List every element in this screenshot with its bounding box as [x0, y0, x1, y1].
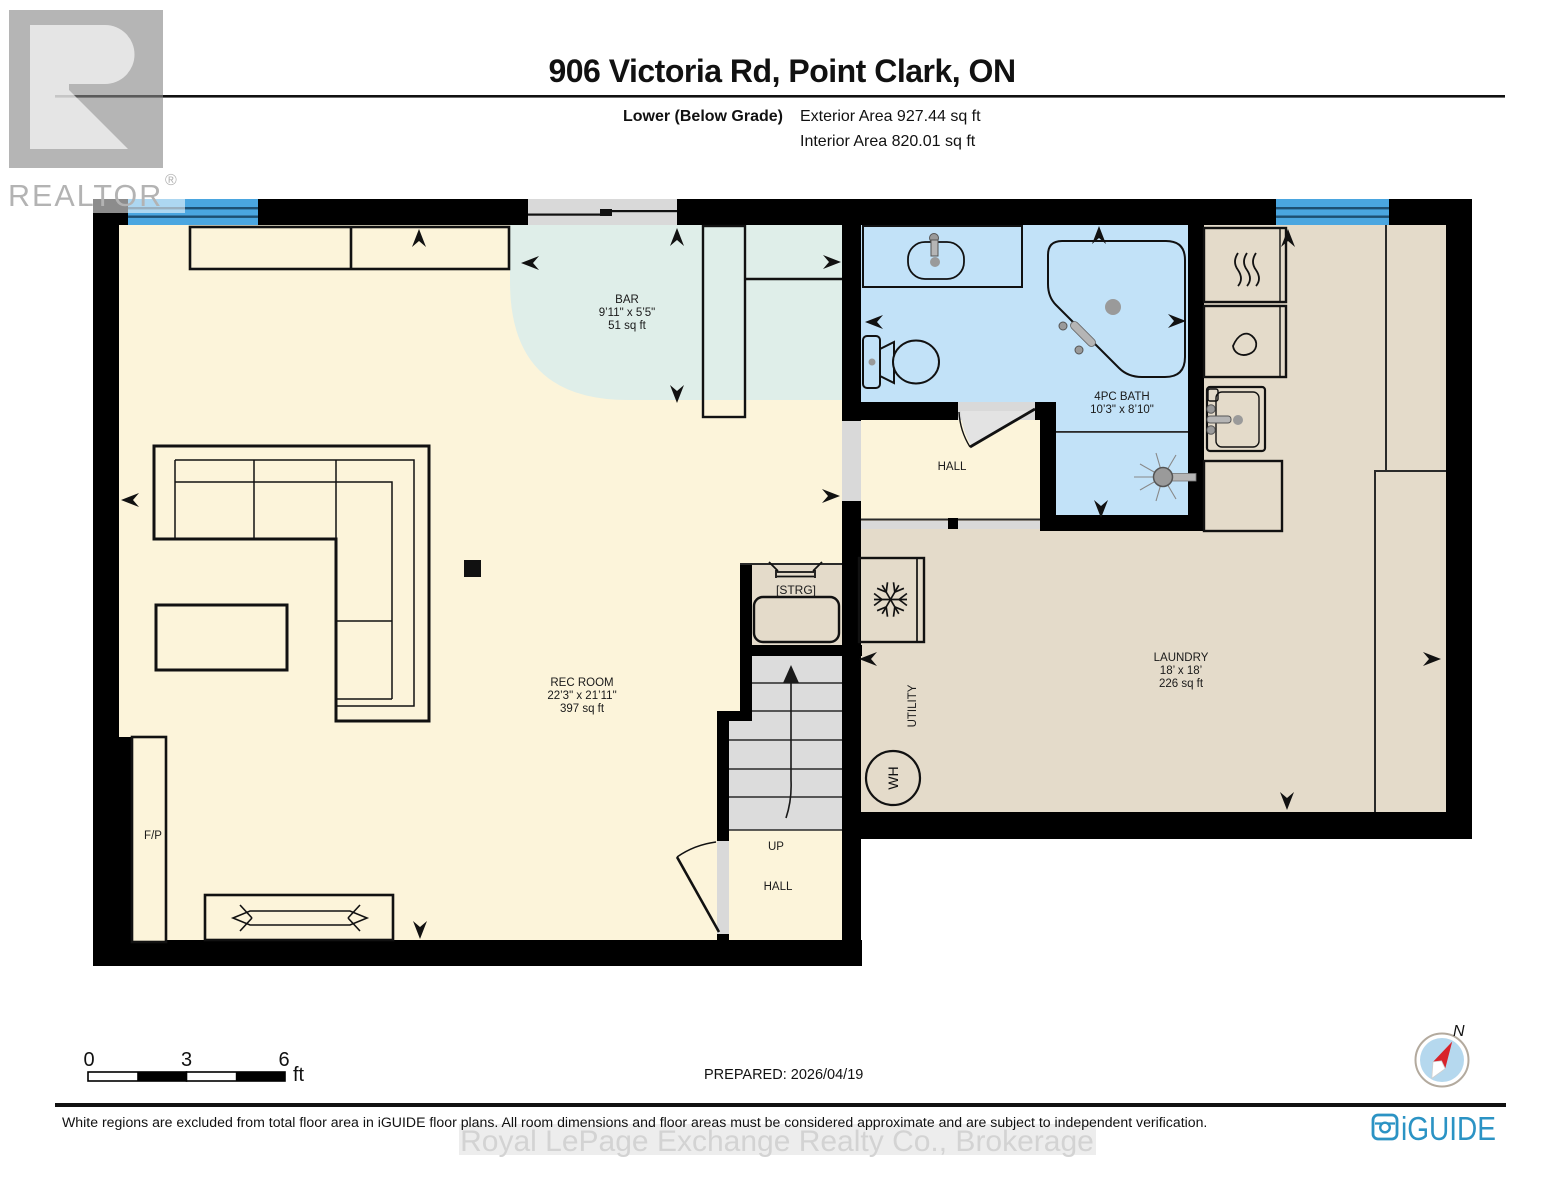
svg-text:9’11" x 5’5": 9’11" x 5’5"	[599, 307, 656, 319]
svg-text:REC ROOM: REC ROOM	[550, 677, 613, 689]
svg-text:WH: WH	[885, 766, 901, 789]
svg-text:226 sq ft: 226 sq ft	[1159, 678, 1204, 690]
svg-text:397 sq ft: 397 sq ft	[560, 703, 605, 715]
svg-text:REALTOR: REALTOR	[8, 179, 163, 213]
svg-text:Interior Area 820.01 sq ft: Interior Area 820.01 sq ft	[800, 133, 976, 150]
svg-text:UP: UP	[768, 841, 784, 853]
svg-text:UTILITY: UTILITY	[907, 684, 919, 727]
svg-text:N: N	[1453, 1023, 1465, 1040]
svg-text:BAR: BAR	[615, 294, 639, 306]
svg-text:0: 0	[83, 1049, 94, 1071]
svg-text:PREPARED: 2026/04/19: PREPARED: 2026/04/19	[704, 1067, 863, 1083]
svg-text:HALL: HALL	[938, 461, 967, 473]
svg-text:3: 3	[181, 1049, 192, 1071]
svg-text:F/P: F/P	[144, 830, 162, 842]
svg-text:iGUIDE: iGUIDE	[1401, 1110, 1496, 1147]
svg-text:Lower (Below Grade): Lower (Below Grade)	[623, 108, 783, 125]
svg-text:LAUNDRY: LAUNDRY	[1154, 652, 1209, 664]
svg-text:4PC BATH: 4PC BATH	[1094, 391, 1149, 403]
svg-text:[STRG]: [STRG]	[776, 583, 816, 597]
svg-text:51 sq ft: 51 sq ft	[608, 320, 647, 332]
svg-text:ft: ft	[293, 1064, 305, 1086]
svg-text:Exterior Area 927.44 sq ft: Exterior Area 927.44 sq ft	[800, 108, 981, 125]
svg-text:White regions are excluded fro: White regions are excluded from total fl…	[62, 1114, 1207, 1130]
svg-text:6: 6	[278, 1049, 289, 1071]
svg-text:906 Victoria Rd, Point Clark,: 906 Victoria Rd, Point Clark, ON	[548, 53, 1015, 89]
svg-text:HALL: HALL	[764, 881, 793, 893]
svg-text:10’3" x 8’10": 10’3" x 8’10"	[1090, 404, 1154, 416]
svg-text:22’3" x 21’11": 22’3" x 21’11"	[547, 690, 616, 702]
svg-text:18’ x 18’: 18’ x 18’	[1160, 665, 1202, 677]
svg-text:®: ®	[165, 172, 177, 189]
